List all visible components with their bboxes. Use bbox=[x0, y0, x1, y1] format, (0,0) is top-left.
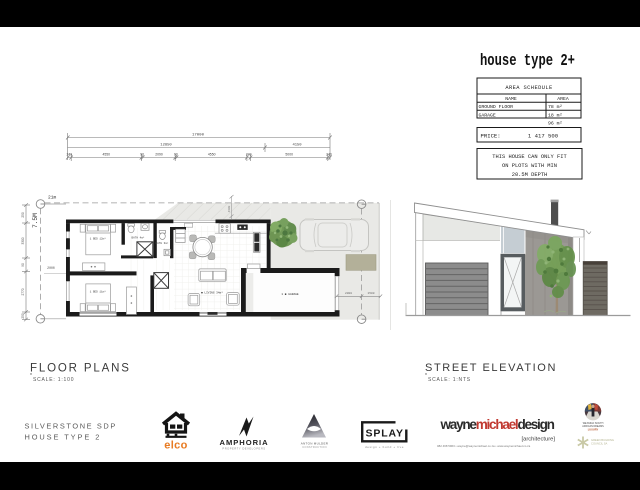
svg-text:SCALE: 1:100: SCALE: 1:100 bbox=[33, 377, 74, 383]
svg-text:COUNCIL SA: COUNCIL SA bbox=[591, 441, 608, 445]
svg-text:2090: 2090 bbox=[155, 152, 163, 156]
svg-text:1500: 1500 bbox=[368, 292, 375, 295]
svg-text:house type 2+: house type 2+ bbox=[480, 51, 575, 70]
svg-text:GREEN BUILDING: GREEN BUILDING bbox=[591, 438, 614, 442]
svg-text:FLOOR PLANS: FLOOR PLANS bbox=[30, 363, 131, 375]
svg-text:NAME: NAME bbox=[505, 96, 517, 102]
svg-text:4550: 4550 bbox=[103, 152, 111, 156]
svg-text:7.5M: 7.5M bbox=[32, 213, 39, 228]
svg-text:3300: 3300 bbox=[21, 237, 25, 244]
svg-text:4550: 4550 bbox=[208, 152, 216, 156]
svg-text:2770: 2770 bbox=[21, 288, 25, 295]
svg-text:2000: 2000 bbox=[47, 266, 55, 270]
svg-text:design + build + live: design + build + live bbox=[365, 445, 404, 449]
svg-text:HOUSE TYPE 2: HOUSE TYPE 2 bbox=[25, 433, 101, 442]
svg-text:250: 250 bbox=[21, 212, 25, 218]
svg-text:90: 90 bbox=[140, 152, 144, 156]
svg-text:78 m²: 78 m² bbox=[548, 104, 563, 110]
svg-text:12850: 12850 bbox=[160, 144, 172, 148]
svg-text:STREET ELEVATION: STREET ELEVATION bbox=[425, 362, 557, 374]
svg-text:1 BED 11m²: 1 BED 11m² bbox=[90, 290, 107, 293]
svg-text:18 m²: 18 m² bbox=[548, 112, 563, 118]
svg-text:CONSTRUCTION: CONSTRUCTION bbox=[302, 445, 327, 449]
svg-text:PROPERTY DEVELOPERS: PROPERTY DEVELOPERS bbox=[222, 446, 265, 450]
svg-text:1 417 500: 1 417 500 bbox=[528, 132, 559, 139]
svg-text:2000: 2000 bbox=[345, 292, 352, 295]
svg-text:SCALE: 1:NTS: SCALE: 1:NTS bbox=[428, 377, 471, 383]
svg-text:GROUND FLOOR: GROUND FLOOR bbox=[479, 104, 514, 110]
svg-text:■ LIVING 34m²: ■ LIVING 34m² bbox=[201, 292, 223, 295]
svg-text:4150: 4150 bbox=[292, 144, 302, 148]
svg-text:5000: 5000 bbox=[285, 152, 293, 156]
svg-text:PRICE:: PRICE: bbox=[481, 132, 501, 139]
svg-text:AREA SCHEDULE: AREA SCHEDULE bbox=[505, 85, 552, 91]
svg-text:1 BED 12m²: 1 BED 12m² bbox=[90, 237, 107, 240]
svg-text:1 ■ GARAGE: 1 ■ GARAGE bbox=[281, 293, 299, 296]
svg-text:waynemichaeldesign: waynemichaeldesign bbox=[440, 417, 555, 432]
svg-text:AREA: AREA bbox=[557, 96, 569, 102]
svg-text:21m: 21m bbox=[48, 195, 57, 201]
svg-text:BATH 3m²: BATH 3m² bbox=[156, 242, 169, 245]
svg-text:90: 90 bbox=[174, 152, 178, 156]
svg-text:17000: 17000 bbox=[192, 133, 205, 137]
svg-text:[architecture]: [architecture] bbox=[521, 436, 555, 442]
svg-text:THIS HOUSE CAN ONLY FIT: THIS HOUSE CAN ONLY FIT bbox=[492, 154, 567, 160]
svg-text:240: 240 bbox=[246, 152, 252, 156]
svg-text:96 m²: 96 m² bbox=[548, 120, 563, 126]
svg-text:90: 90 bbox=[21, 263, 25, 267]
svg-text:GARAGE: GARAGE bbox=[479, 112, 496, 118]
svg-text:AMPHORIA: AMPHORIA bbox=[220, 438, 269, 447]
svg-text:LUXURY: LUXURY bbox=[588, 427, 599, 431]
svg-text:082 468 5963 • wayne@wayne: 082 468 5963 • wayne@waynemichael.co.za … bbox=[437, 444, 531, 448]
svg-text:BATH 4m²: BATH 4m² bbox=[132, 237, 145, 240]
svg-text:240: 240 bbox=[326, 152, 332, 156]
svg-text:20.5M DEPTH: 20.5M DEPTH bbox=[512, 172, 548, 178]
svg-text:elco: elco bbox=[164, 440, 188, 452]
svg-text:240: 240 bbox=[66, 152, 72, 156]
svg-text:ANTON MULDER: ANTON MULDER bbox=[301, 441, 329, 445]
svg-text:250: 250 bbox=[21, 313, 25, 319]
svg-text:SPLAY: SPLAY bbox=[366, 428, 404, 440]
svg-text:AFRICAN DREAMS: AFRICAN DREAMS bbox=[582, 425, 604, 428]
svg-text:ON PLOTS WITH MIN: ON PLOTS WITH MIN bbox=[502, 163, 557, 169]
svg-text:4980: 4980 bbox=[228, 205, 231, 212]
svg-text:SILVERSTONE SDP: SILVERSTONE SDP bbox=[25, 422, 117, 431]
